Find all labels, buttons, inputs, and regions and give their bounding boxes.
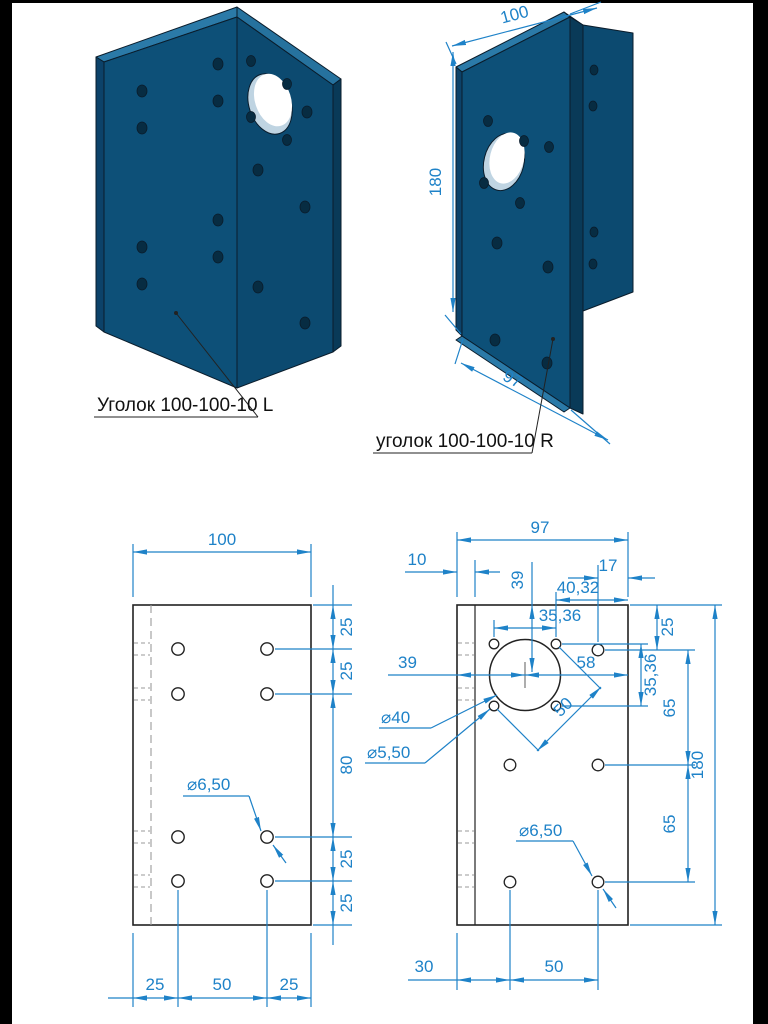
front-dim-width: 100 xyxy=(208,530,236,549)
side-dim-58: 58 xyxy=(577,653,596,672)
side-dim-3536-top: 35,36 xyxy=(539,606,582,625)
front-dim-bottom-1: 50 xyxy=(213,975,232,994)
side-dim-30: 30 xyxy=(415,957,434,976)
front-dim-right-0: 25 xyxy=(337,618,356,637)
iso-r-left-edge xyxy=(456,67,462,336)
side-dim-4032: 40,32 xyxy=(557,578,600,597)
side-dim-center-top: 39 xyxy=(508,571,527,590)
iso-dim-height: 180 xyxy=(426,168,445,196)
iso-right-label: уголок 100-100-10 R xyxy=(376,431,554,452)
side-callout-big: ⌀40 xyxy=(381,708,410,727)
side-dim-65-upper: 65 xyxy=(660,699,679,718)
front-dim-right-3: 25 xyxy=(337,850,356,869)
iso-view-left xyxy=(96,7,341,388)
side-dim-width: 97 xyxy=(531,518,550,537)
side-dim-3536-right: 35,36 xyxy=(641,654,660,697)
front-hole-callout: ⌀6,50 xyxy=(187,775,230,794)
side-dim-thickness: 10 xyxy=(408,550,427,569)
front-dim-bottom-0: 25 xyxy=(146,975,165,994)
drawing-sheet: Уголок 100-100-10 L xyxy=(0,0,768,1024)
side-dim-height: 180 xyxy=(688,751,707,779)
side-callout-hole: ⌀6,50 xyxy=(519,821,562,840)
front-dim-bottom-2: 25 xyxy=(280,975,299,994)
iso-left-label: Уголок 100-100-10 L xyxy=(97,395,273,416)
side-dim-center-left: 39 xyxy=(398,653,417,672)
iso-l-plate-100 xyxy=(104,17,237,388)
iso-r-thickness-edge xyxy=(570,17,583,414)
side-dim-25: 25 xyxy=(658,618,677,637)
front-view-outline xyxy=(133,605,311,925)
front-dim-right-1: 25 xyxy=(337,662,356,681)
side-dim-17: 17 xyxy=(599,556,618,575)
front-dim-right-4: 25 xyxy=(337,894,356,913)
iso-l-left-edge xyxy=(96,57,104,332)
side-dim-50-bottom: 50 xyxy=(545,957,564,976)
side-callout-pattern: ⌀5,50 xyxy=(367,743,410,762)
side-dim-65-lower: 65 xyxy=(660,815,679,834)
front-dim-right-2: 80 xyxy=(337,756,356,775)
iso-l-right-edge xyxy=(333,79,341,352)
technical-drawing-canvas: Уголок 100-100-10 L xyxy=(0,0,768,1024)
